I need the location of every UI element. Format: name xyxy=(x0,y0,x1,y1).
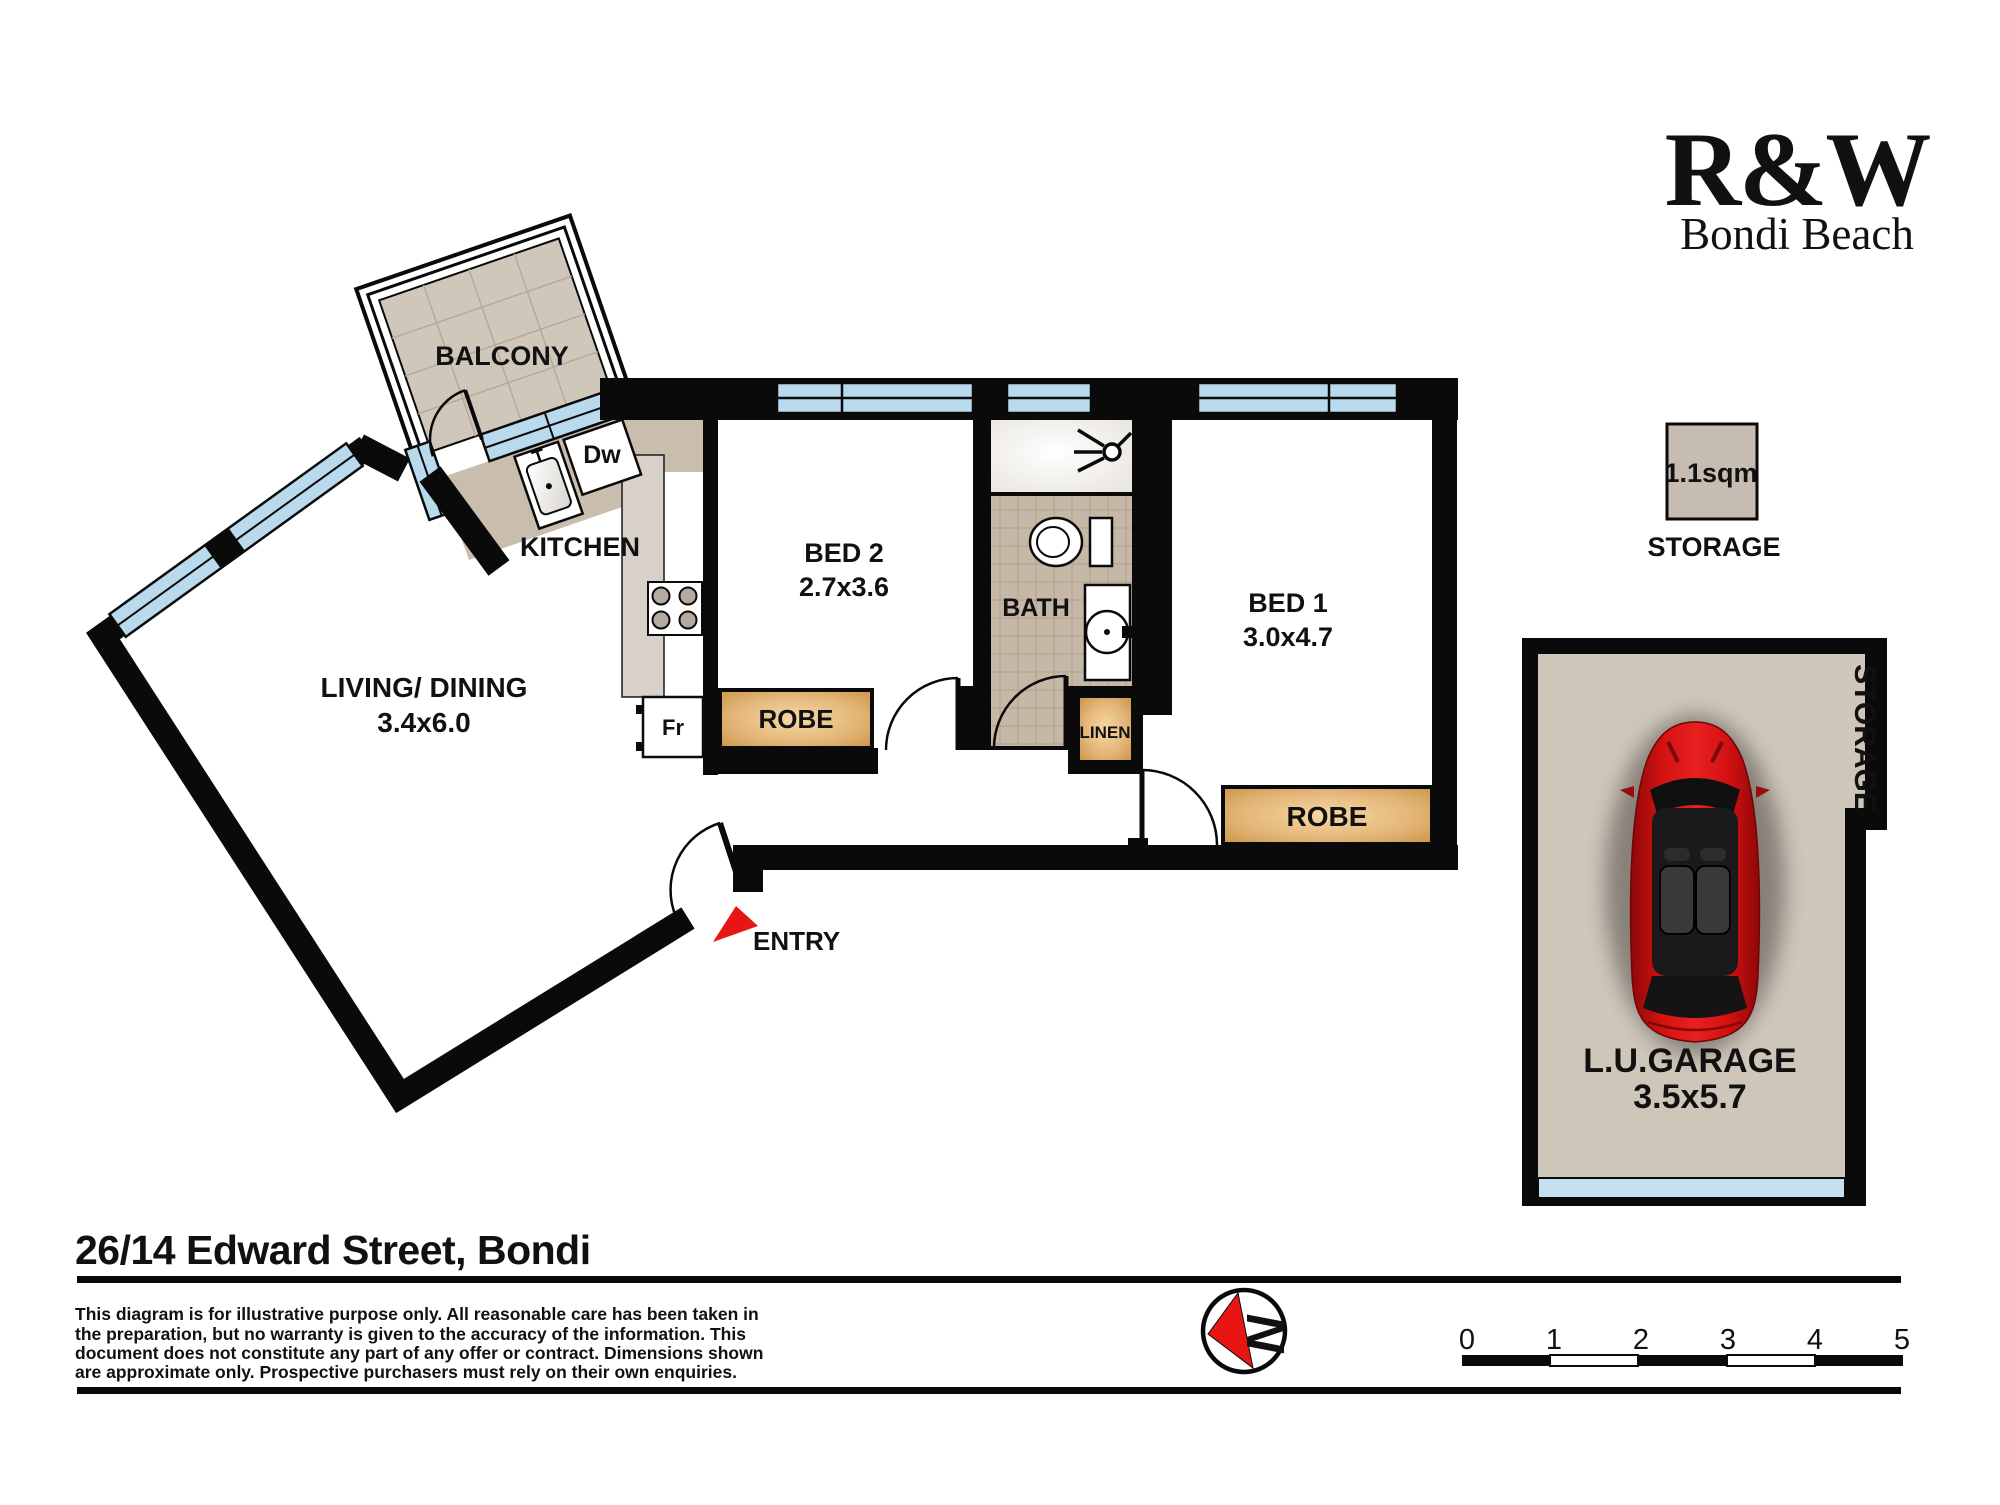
kitchen-counter xyxy=(622,455,664,697)
bed1-label: BED 1 xyxy=(1248,588,1328,618)
living-label: LIVING/ DINING xyxy=(321,672,528,703)
garage-door xyxy=(1538,1178,1845,1198)
toilet-icon xyxy=(1030,518,1112,566)
scale-tick-5: 5 xyxy=(1894,1324,1910,1356)
robe-bed2-label: ROBE xyxy=(758,704,833,734)
fridge-label: Fr xyxy=(662,715,684,740)
scale-tick-2: 2 xyxy=(1633,1324,1649,1356)
car-headrest-right xyxy=(1700,848,1726,861)
wall-bed2-bath xyxy=(973,420,991,750)
address-title: 26/14 Edward Street, Bondi xyxy=(75,1227,591,1273)
garage-dims: 3.5x5.7 xyxy=(1633,1078,1746,1116)
bath-threshold xyxy=(991,746,1068,750)
garage-storage-label: STORAGE xyxy=(1848,664,1881,812)
shower-divider xyxy=(991,492,1132,496)
disclaimer-line-4: are approximate only. Prospective purcha… xyxy=(75,1362,737,1382)
car-seat-left xyxy=(1660,866,1694,934)
bed1-dims: 3.0x4.7 xyxy=(1243,622,1333,652)
balcony-corner-wall xyxy=(358,446,404,470)
living-dims: 3.4x6.0 xyxy=(377,707,470,738)
living-window xyxy=(109,443,362,637)
entry-arrow-icon xyxy=(713,906,758,942)
car-rear-deck xyxy=(1643,976,1747,1018)
car-seat-right xyxy=(1696,866,1730,934)
windows-top xyxy=(777,383,1397,413)
bottom-wall xyxy=(745,845,1458,870)
bed2-dims: 2.7x3.6 xyxy=(799,572,889,602)
disclaimer-line-2: the preparation, but no warranty is give… xyxy=(75,1324,746,1344)
balcony-label: BALCONY xyxy=(435,341,569,371)
wall-bath-bed1 xyxy=(1132,420,1172,715)
disclaimer-line-3: document does not constitute any part of… xyxy=(75,1343,763,1363)
entry-label: ENTRY xyxy=(753,926,840,956)
scale-tick-3: 3 xyxy=(1720,1324,1736,1356)
linen-label: LINEN xyxy=(1080,723,1131,742)
floorplan-canvas: Dw Fr ROBE ROBE LINEN xyxy=(0,0,2000,1500)
car-headrest-left xyxy=(1664,848,1690,861)
vanity-basin-icon xyxy=(1085,585,1132,680)
scale-tick-1: 1 xyxy=(1546,1324,1562,1356)
garage-label: L.U.GARAGE xyxy=(1583,1042,1796,1080)
rule-top xyxy=(77,1276,1901,1283)
scale-tick-0: 0 xyxy=(1459,1324,1475,1356)
robe-bed1-label: ROBE xyxy=(1287,801,1368,832)
bath-label: BATH xyxy=(1002,594,1070,622)
car-top-view xyxy=(1605,715,1785,1055)
storage-unit-label: STORAGE xyxy=(1647,532,1780,562)
scale-tick-4: 4 xyxy=(1807,1324,1823,1356)
dishwasher-label: Dw xyxy=(583,441,621,469)
storage-unit-area: 1.1sqm xyxy=(1664,458,1757,488)
bed1-door-jamb xyxy=(1128,838,1148,870)
scale-bar: 0 1 2 3 4 5 xyxy=(1459,1324,1910,1366)
rule-bottom xyxy=(77,1387,1901,1394)
door-bed1 xyxy=(1142,770,1217,845)
door-bed2 xyxy=(886,678,958,750)
bed2-label: BED 2 xyxy=(804,538,884,568)
right-wall xyxy=(1432,420,1457,870)
wall-kitchen-bed2 xyxy=(703,420,718,775)
disclaimer-line-1: This diagram is for illustrative purpose… xyxy=(75,1304,759,1324)
kitchen-label: KITCHEN xyxy=(520,532,640,562)
door-entry xyxy=(671,823,742,917)
logo-office: Bondi Beach xyxy=(1680,209,1914,259)
north-compass-icon: N xyxy=(1203,1290,1295,1372)
stove-icon xyxy=(648,582,702,635)
wall-under-robe2 xyxy=(703,748,878,774)
compass-letter: N xyxy=(1235,1314,1295,1354)
